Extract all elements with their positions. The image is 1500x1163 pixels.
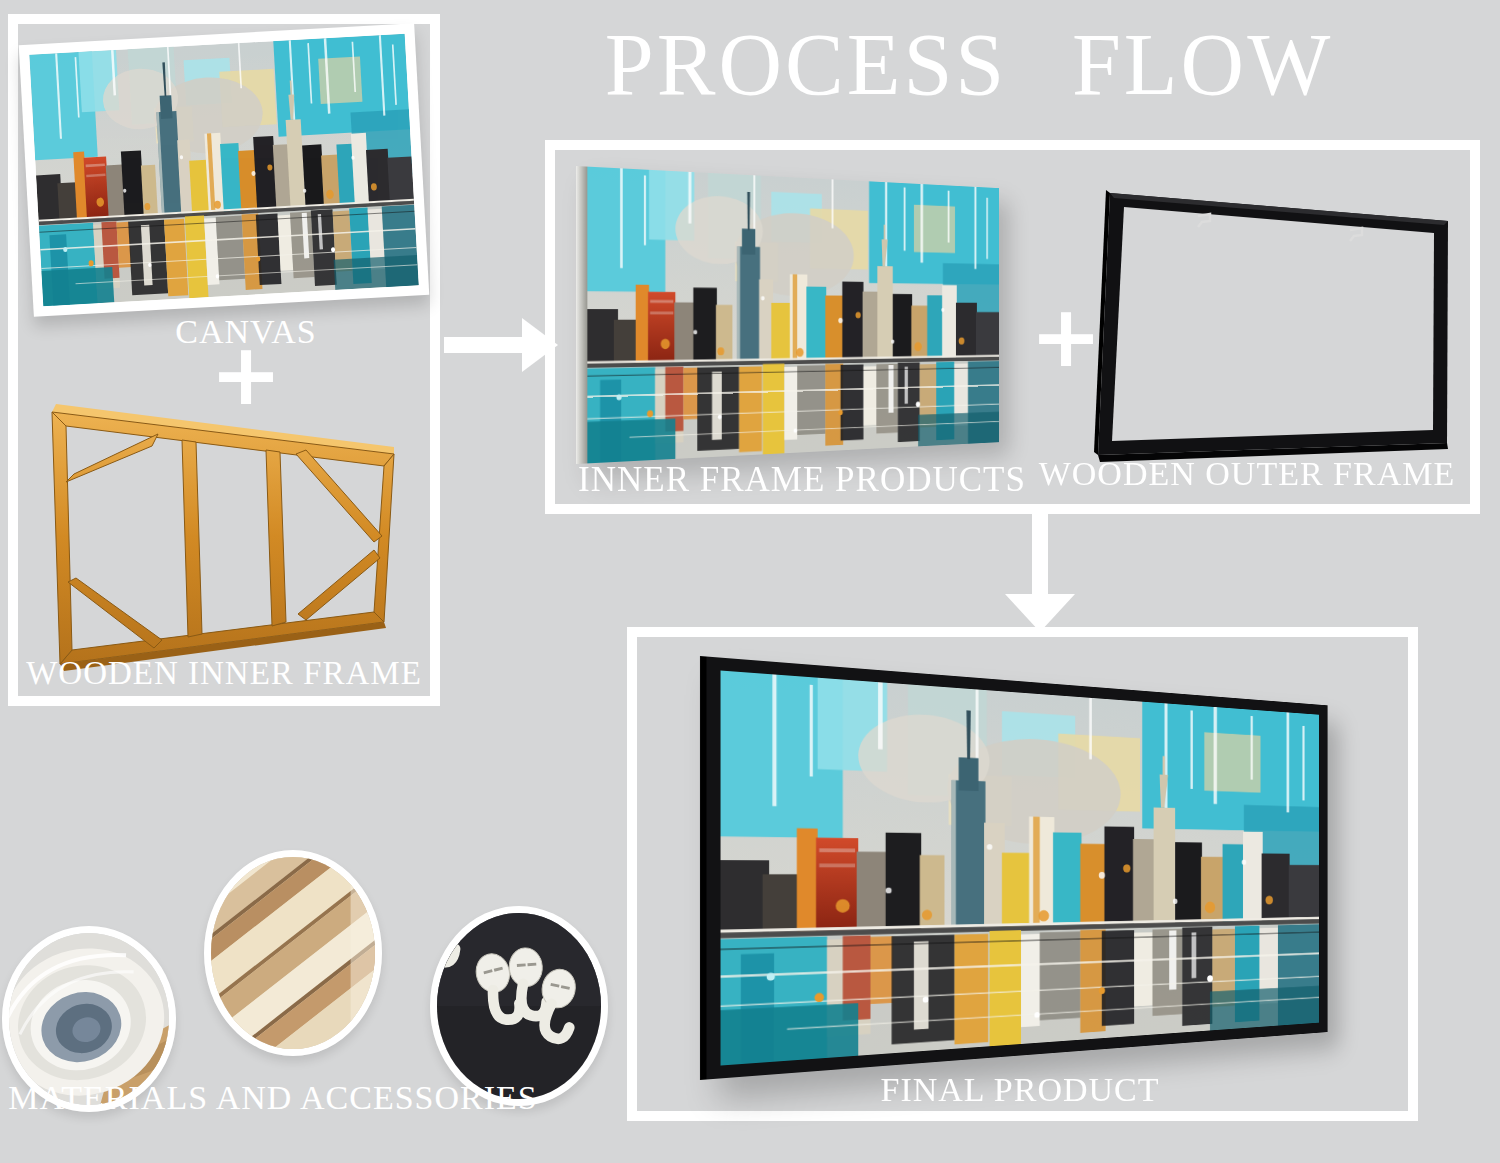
final-product-photo [700, 656, 1480, 1086]
final-product-label: FINAL PRODUCT [880, 1072, 1159, 1108]
inner-frame-product-photo [576, 166, 1086, 466]
stretcher-frame-photo [40, 390, 408, 682]
skyline-art [721, 671, 1320, 1066]
outer-frame-label: WOODEN OUTER FRAME [1039, 456, 1456, 492]
wood-strips-photo [204, 850, 382, 1056]
arrow-down-icon [1032, 512, 1048, 598]
skyline-art [587, 167, 999, 464]
skyline-art [29, 34, 418, 307]
page-title: PROCESS FLOW [605, 14, 1333, 115]
arrow-right-icon [444, 337, 524, 353]
materials-label: MATERIALS AND ACCESSORIES [8, 1080, 537, 1116]
outer-frame-photo [1092, 190, 1456, 466]
hanging-hooks-photo [430, 906, 608, 1106]
inner-products-label: INNER FRAME PRODUCTS [578, 462, 1026, 499]
process-flow-infographic: PROCESS FLOW CANVAS + WOODEN INNER FRAME… [0, 0, 1500, 1163]
canvas-side-edge [576, 166, 587, 464]
inner-frame-label: WOODEN INNER FRAME [26, 656, 422, 691]
canvas-print-photo [19, 23, 430, 317]
